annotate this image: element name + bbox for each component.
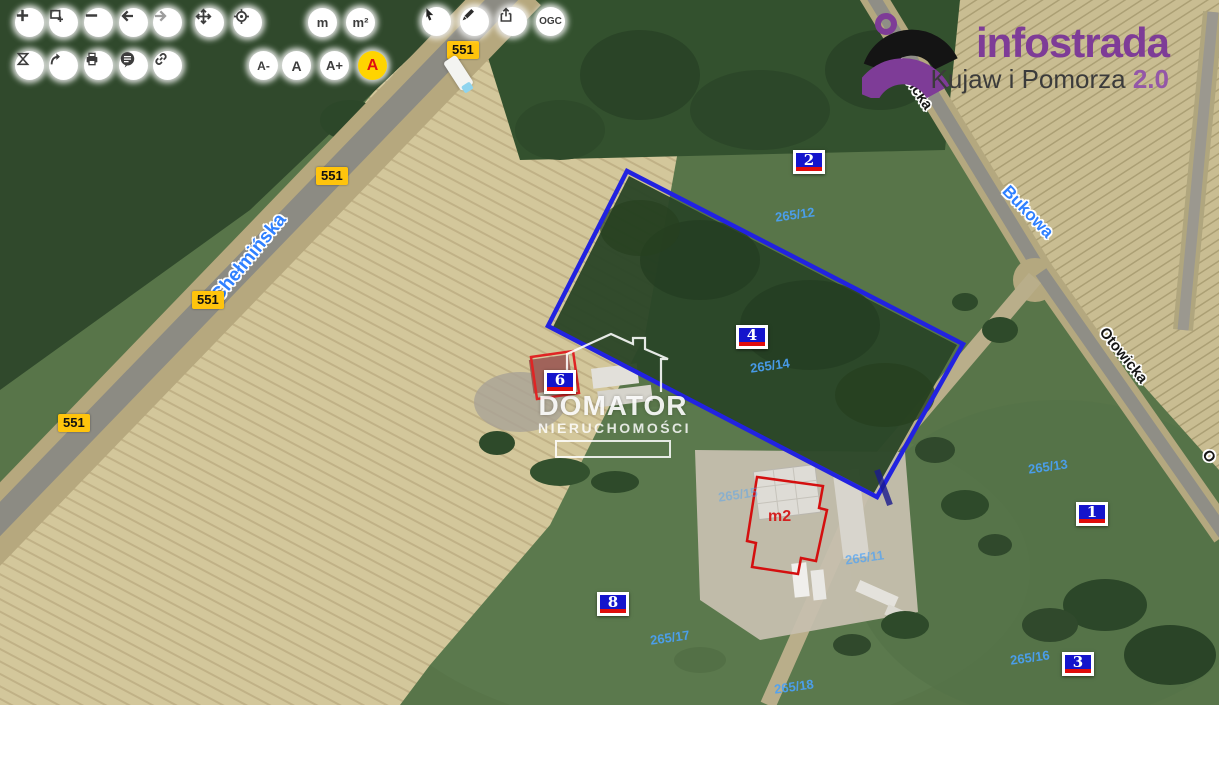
legend-button[interactable]	[119, 51, 148, 80]
measure-area-button[interactable]: m²	[346, 8, 375, 37]
share-box-icon	[498, 7, 514, 23]
map-viewport[interactable]: DOMATOR NIERUCHOMOŚCI m2 Chełmińska Otow…	[0, 0, 1219, 705]
zoom-box-button[interactable]	[49, 8, 78, 37]
plus-icon	[15, 8, 30, 23]
box-zoom-icon	[49, 8, 65, 24]
road-badge-551: 551	[58, 414, 90, 432]
redo-arrow-icon	[49, 51, 65, 67]
ogc-services-button[interactable]: OGC	[536, 7, 565, 36]
high-contrast-button[interactable]: A	[358, 51, 387, 80]
export-button[interactable]	[498, 7, 527, 36]
road-badge-551: 551	[316, 167, 348, 185]
list-bubble-icon	[119, 51, 136, 68]
pan-arrows-icon	[195, 8, 212, 25]
arrow-left-icon	[119, 8, 135, 24]
share-button[interactable]	[49, 51, 78, 80]
font-increase-button[interactable]: A+	[320, 51, 349, 80]
app-window: DOMATOR NIERUCHOMOŚCI m2 Chełmińska Otow…	[0, 0, 1219, 772]
history-forward-button[interactable]	[153, 8, 182, 37]
minus-icon	[84, 8, 99, 23]
map-marker-2[interactable]: 2	[793, 150, 825, 174]
pan-button[interactable]	[195, 8, 224, 37]
locate-button[interactable]	[233, 8, 262, 37]
zoom-out-button[interactable]	[84, 8, 113, 37]
map-marker-6[interactable]: 6	[544, 370, 576, 394]
map-marker-1[interactable]: 1	[1076, 502, 1108, 526]
crosshair-icon	[233, 8, 250, 25]
hourglass-icon	[15, 51, 31, 67]
map-marker-8[interactable]: 8	[597, 592, 629, 616]
link-button[interactable]	[153, 51, 182, 80]
history-back-button[interactable]	[119, 8, 148, 37]
pencil-icon	[460, 7, 476, 23]
arrow-right-icon	[153, 8, 169, 24]
infostrada-logo: infostrada Kujaw i Pomorza 2.0	[862, 6, 1177, 98]
printer-icon	[84, 51, 100, 67]
construction-area-label: m2	[768, 508, 791, 526]
zoom-in-button[interactable]	[15, 8, 44, 37]
road-badge-551: 551	[192, 291, 224, 309]
logo-brand: infostrada	[976, 22, 1169, 64]
print-button[interactable]	[84, 51, 113, 80]
cursor-icon	[422, 7, 437, 22]
font-reset-button[interactable]: A	[282, 51, 311, 80]
history-button[interactable]	[15, 51, 44, 80]
map-marker-3[interactable]: 3	[1062, 652, 1094, 676]
edit-button[interactable]	[460, 7, 489, 36]
logo-region: Kujaw i Pomorza 2.0	[931, 66, 1169, 92]
measure-length-button[interactable]: m	[308, 8, 337, 37]
font-decrease-button[interactable]: A-	[249, 51, 278, 80]
select-pointer-button[interactable]	[422, 7, 451, 36]
logo-version: 2.0	[1133, 64, 1169, 94]
link-icon	[153, 51, 169, 67]
map-marker-4[interactable]: 4	[736, 325, 768, 349]
